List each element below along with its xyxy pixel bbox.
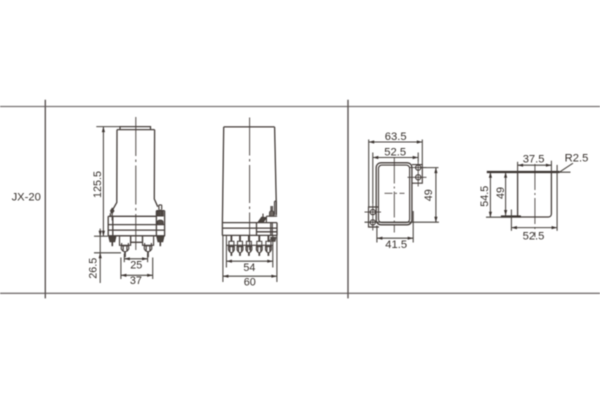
svg-text:49: 49 [495,187,507,199]
svg-text:26.5: 26.5 [88,258,100,279]
svg-text:63.5: 63.5 [385,131,407,143]
svg-text:25: 25 [130,259,142,271]
svg-text:60: 60 [244,277,256,289]
svg-text:54: 54 [243,262,255,274]
svg-text:JX-20: JX-20 [12,191,41,203]
svg-text:41.5: 41.5 [385,239,407,251]
svg-text:52.5: 52.5 [523,230,545,242]
svg-text:52.5: 52.5 [384,147,406,159]
svg-text:37.5: 37.5 [523,154,545,166]
svg-text:54.5: 54.5 [479,186,491,207]
svg-text:37: 37 [130,275,142,287]
svg-text:125.5: 125.5 [92,171,104,198]
svg-text:49: 49 [423,189,435,201]
svg-text:R2.5: R2.5 [565,152,589,164]
